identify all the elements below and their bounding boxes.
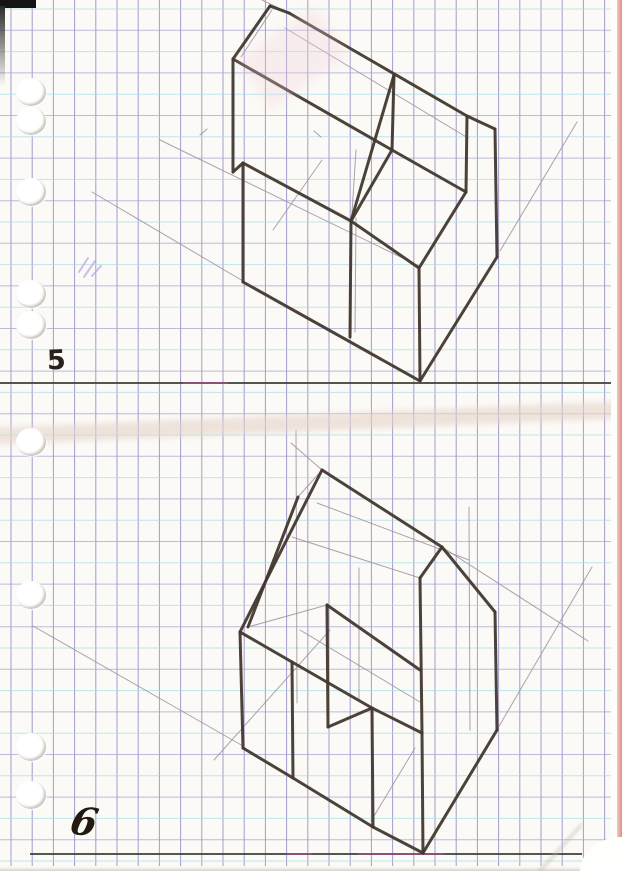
- punch-hole: [16, 781, 46, 809]
- exercise-number-5: 5: [46, 345, 66, 377]
- underlying-sheet-edge: [617, 0, 622, 871]
- punch-hole: [16, 178, 46, 206]
- scan-corner-mark: [0, 0, 36, 8]
- ground-lines: [0, 383, 613, 854]
- punch-hole: [16, 581, 46, 609]
- punch-hole: [16, 78, 46, 106]
- bottom-paper-edge: [0, 867, 622, 871]
- punch-hole: [16, 280, 46, 308]
- pencil-marks: [79, 129, 321, 277]
- punch-hole: [16, 107, 46, 135]
- scanned-page: 5 6: [0, 0, 622, 871]
- scan-edge-streak: [0, 6, 5, 86]
- punch-hole: [16, 311, 46, 339]
- punch-hole: [16, 733, 46, 761]
- punch-hole: [16, 428, 46, 456]
